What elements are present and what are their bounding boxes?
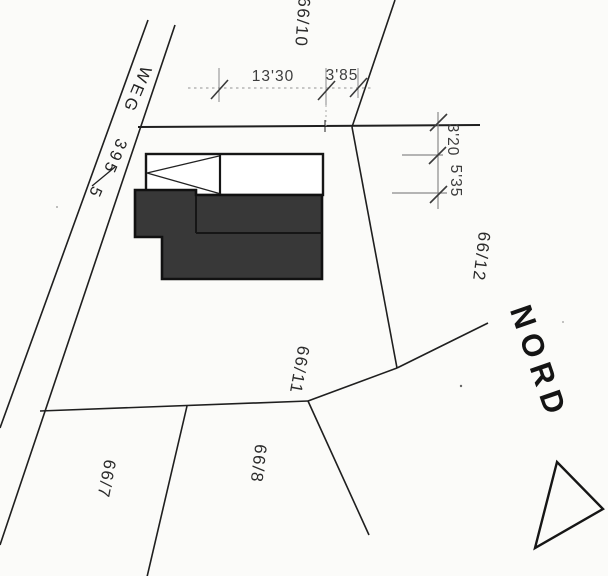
dimension-value-5-35: 5'35	[447, 165, 464, 198]
dimension-value-3-20: 3'20	[444, 124, 461, 157]
north-indicator: NORD	[503, 300, 603, 548]
north-label: NORD	[503, 300, 575, 424]
cadastral-site-plan: WEG 395 5 13'30 3'85	[0, 0, 608, 576]
main-building-footprint	[135, 190, 322, 279]
boundary-south-long-line	[40, 401, 308, 411]
site-plan-page: WEG 395 5 13'30 3'85	[0, 0, 608, 576]
dimension-value-13-30: 13'30	[252, 68, 294, 85]
scan-speck	[56, 206, 58, 208]
parcel-label-66-10: 66/10	[291, 0, 313, 48]
scan-speck	[460, 385, 462, 387]
top-dimension-chain: 13'30 3'85	[188, 67, 371, 126]
road: WEG 395 5	[0, 20, 175, 545]
parcel-label-66-8: 66/8	[247, 443, 271, 484]
parcel-label-66-12: 66/12	[469, 231, 494, 283]
north-arrow-triangle	[535, 462, 603, 548]
boundary-southeast-line	[308, 401, 369, 535]
boundary-top-line	[138, 125, 480, 127]
boundary-to-nord-line	[397, 323, 488, 368]
road-left-edge-line	[0, 20, 148, 428]
parcel-label-66-11: 66/11	[286, 344, 313, 395]
scan-speck	[562, 321, 564, 323]
boundary-southwest-line	[147, 406, 187, 576]
right-dimension-chain: 3'20 5'35	[392, 112, 464, 209]
road-right-edge-line	[0, 25, 175, 545]
buildings	[135, 154, 323, 279]
road-label-weg: WEG	[119, 63, 155, 116]
parcel-label-66-7: 66/7	[93, 458, 119, 500]
boundary-east-line	[352, 127, 397, 368]
dimension-value-3-85: 3'85	[326, 67, 359, 84]
boundary-junction-line	[308, 368, 397, 401]
boundary-northeast-diagonal	[352, 0, 395, 127]
